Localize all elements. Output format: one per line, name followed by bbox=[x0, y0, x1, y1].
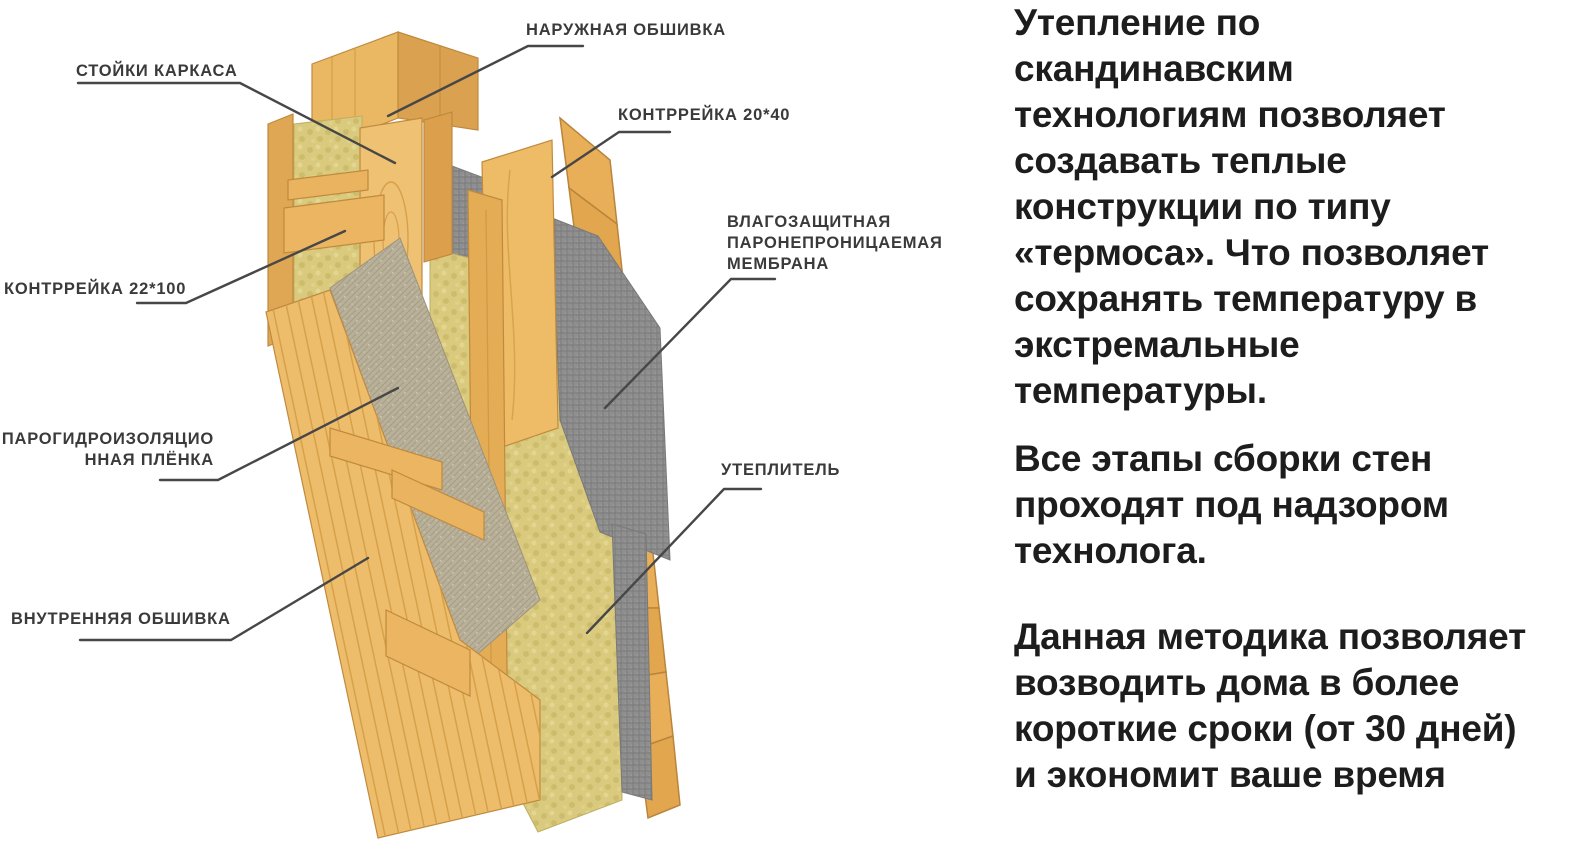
label-outer-cladding: НАРУЖНАЯ ОБШИВКА bbox=[526, 20, 726, 41]
info-paragraph-speed: Данная методика позволяет возводить дома… bbox=[1014, 614, 1580, 798]
label-counter-batten-22x100: КОНТРРЕЙКА 22*100 bbox=[4, 279, 186, 300]
wall-cutaway-diagram: СТОЙКИ КАРКАСА НАРУЖНАЯ ОБШИВКА КОНТРРЕЙ… bbox=[0, 0, 1000, 856]
infographic-page: СТОЙКИ КАРКАСА НАРУЖНАЯ ОБШИВКА КОНТРРЕЙ… bbox=[0, 0, 1584, 856]
info-panel: Утепление по скандинавским технологиям п… bbox=[1014, 0, 1580, 820]
info-paragraph-supervision: Все этапы сборки стен проходят под надзо… bbox=[1014, 436, 1580, 574]
wall-cutaway-illustration bbox=[0, 0, 1000, 856]
label-moisture-membrane: ВЛАГОЗАЩИТНАЯ ПАРОНЕПРОНИЦАЕМАЯ МЕМБРАНА bbox=[727, 212, 943, 275]
label-inner-cladding: ВНУТРЕННЯЯ ОБШИВКА bbox=[11, 609, 231, 630]
label-frame-studs: СТОЙКИ КАРКАСА bbox=[76, 61, 238, 82]
frame-stud-right bbox=[424, 112, 452, 262]
label-counter-batten-20x40: КОНТРРЕЙКА 20*40 bbox=[618, 105, 790, 126]
info-paragraph-technology: Утепление по скандинавским технологиям п… bbox=[1014, 0, 1580, 414]
label-vapor-film: ПАРОГИДРОИЗОЛЯЦИО ННАЯ ПЛЁНКА bbox=[0, 429, 214, 471]
label-insulation: УТЕПЛИТЕЛЬ bbox=[721, 460, 840, 481]
